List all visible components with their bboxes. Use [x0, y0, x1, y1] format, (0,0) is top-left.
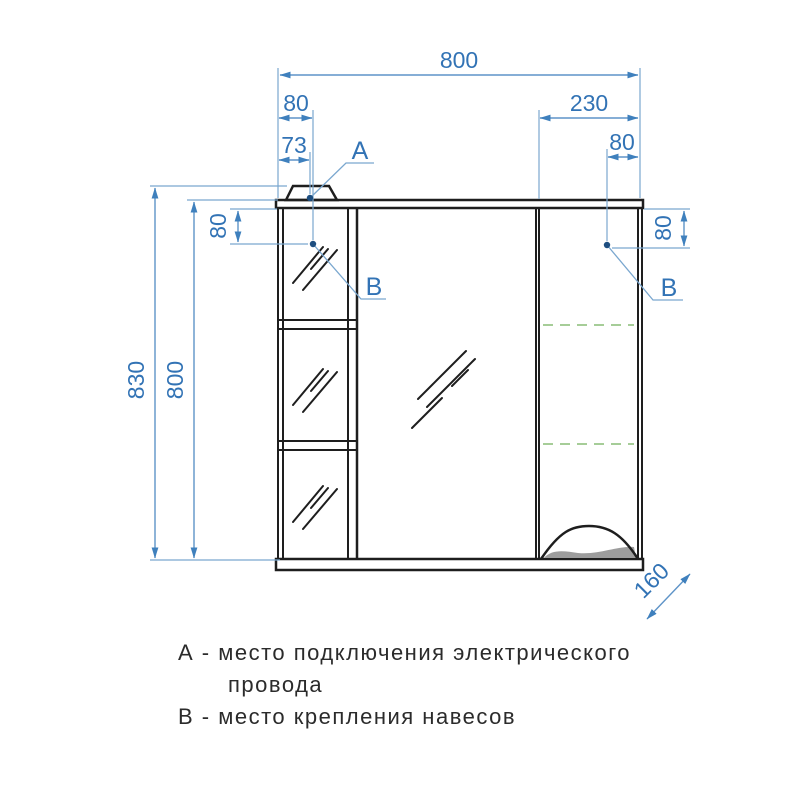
mirror-hatching: [293, 247, 475, 529]
dim-overall-height: 830: [123, 186, 287, 560]
dim-depth-value: 160: [629, 558, 675, 604]
dim-left-point-offset-value: 80: [283, 90, 309, 116]
dim-depth: 160: [629, 558, 690, 619]
dim-right-point-offset-value: 80: [609, 129, 635, 155]
callouts: А В В: [307, 137, 683, 302]
dim-left-point-drop: 80: [205, 209, 308, 244]
mirror-door-glass-hatch: [412, 351, 475, 428]
shelf-2-glass-hatch: [293, 369, 337, 412]
dim-left-point-offset: 80: [279, 90, 313, 240]
shelf-1-glass-hatch: [293, 247, 337, 290]
dim-body-height-value: 800: [162, 361, 188, 399]
legend-line-1: А - место подключения электрического: [178, 640, 631, 665]
legend-line-2: провода: [228, 672, 323, 697]
shelf-3-glass-hatch: [293, 486, 337, 529]
legend: А - место подключения электрического про…: [178, 640, 631, 729]
dim-left-point-drop-value: 80: [205, 213, 231, 239]
point-b-right-label: В: [661, 274, 678, 302]
legend-line-3: В - место крепления навесов: [178, 704, 516, 729]
dim-right-point-drop-value: 80: [650, 215, 676, 241]
curved-shade: [544, 547, 636, 558]
dimensions: 800 80 230 73 80: [123, 47, 690, 619]
dim-right-door-width-value: 230: [570, 90, 608, 116]
point-b-right-dot: [604, 242, 610, 248]
dim-body-height: 800: [162, 200, 278, 558]
dim-lamp-point-offset: 73: [279, 132, 310, 194]
right-door-details: [541, 325, 638, 559]
dim-overall-width: 800: [278, 47, 640, 198]
point-b-left-dot: [310, 241, 316, 247]
dim-right-point-drop: 80: [612, 209, 690, 248]
dim-right-point-offset: 80: [607, 129, 638, 241]
point-a-label: А: [352, 137, 369, 165]
dim-lamp-point-offset-value: 73: [281, 132, 307, 158]
technical-drawing: 800 80 230 73 80: [0, 0, 800, 800]
dim-overall-width-value: 800: [440, 47, 478, 73]
drawing-canvas: 800 80 230 73 80: [0, 0, 800, 800]
point-b-left-label: В: [366, 273, 383, 301]
point-a-dot: [307, 195, 313, 201]
bottom-panel: [276, 559, 643, 570]
callout-b-right: В: [604, 242, 683, 302]
callout-a: А: [307, 137, 374, 201]
dim-overall-height-value: 830: [123, 361, 149, 399]
